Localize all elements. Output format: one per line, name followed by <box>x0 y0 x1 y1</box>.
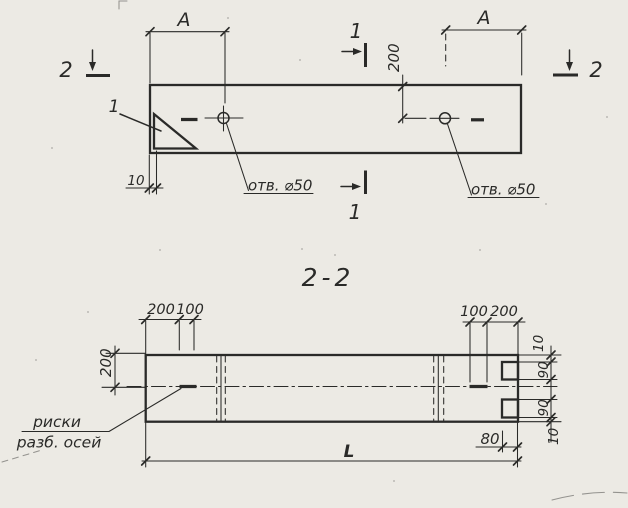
drawing-canvas: 1 A A <box>0 0 628 508</box>
scan-artifact <box>552 492 627 500</box>
dimension-left-200: 200 <box>97 346 145 395</box>
dim-200-label: 200 <box>147 302 175 318</box>
paper-speck <box>159 249 161 251</box>
section-mark-1-top: 1 <box>342 19 366 67</box>
hole-1-callout-label: отв. ⌀50 <box>248 177 312 195</box>
leader-line <box>227 124 249 191</box>
dim-l-label: L <box>344 442 355 462</box>
beam-outline-section <box>146 355 518 422</box>
dim-10-top-label: 10 <box>531 335 547 352</box>
dimension-right-chain: 10 90 90 10 <box>519 335 562 445</box>
paper-speck <box>334 254 336 256</box>
dim-200-label: 200 <box>490 304 518 320</box>
dim-200-plan-label: 200 <box>385 43 403 72</box>
dimension-top-left: 200 100 <box>139 302 204 354</box>
dim-a-right-label: A <box>476 7 491 29</box>
hole-1-callout: отв. ⌀50 <box>227 124 314 195</box>
dimension-top-right: 100 200 <box>460 304 525 382</box>
section-mark-2-left: 2 <box>59 50 110 82</box>
dim-90-bottom-label: 90 <box>536 399 552 416</box>
leader-line <box>448 124 472 195</box>
scan-artifact <box>119 1 127 9</box>
hole-2-callout-label: отв. ⌀50 <box>471 181 535 199</box>
section-mark-2-right: 2 <box>553 50 603 82</box>
hole-2-callout: отв. ⌀50 <box>448 124 540 199</box>
drawing-sheet: 1 A A <box>0 0 628 508</box>
section-2-right-label: 2 <box>589 58 602 82</box>
dimension-a-right: A <box>442 7 526 75</box>
end-notch-upper <box>502 362 518 380</box>
paper-speck <box>87 311 89 313</box>
section-arrow-head <box>352 183 361 190</box>
paper-speck <box>606 116 608 118</box>
section-title: 2-2 <box>302 263 355 292</box>
diaphragm-lines-left <box>217 356 226 421</box>
axis-note: риски разб. осей <box>16 389 181 452</box>
dimension-10-plan: 10 <box>126 151 163 194</box>
dim-100-label: 100 <box>176 302 204 318</box>
dimension-80: 80 <box>476 430 522 452</box>
dim-100-label: 100 <box>460 304 488 320</box>
section-arrow-head <box>353 48 362 55</box>
top-view: 1 A A <box>59 7 602 224</box>
paper-speck <box>227 17 229 19</box>
detail-mark-label: 1 <box>109 97 120 117</box>
axis-note-line2: разб. осей <box>16 434 102 452</box>
beam-outline-plan <box>150 85 521 153</box>
dimension-200-plan: 200 <box>385 43 407 123</box>
paper-speck <box>393 480 395 482</box>
axis-note-line1: риски <box>32 413 81 431</box>
section-1-bottom-label: 1 <box>349 200 362 224</box>
dim-a-left-label: A <box>176 9 191 31</box>
dim-10-plan-label: 10 <box>127 173 144 189</box>
paper-speck <box>51 147 53 149</box>
paper-speck <box>299 59 301 61</box>
diaphragm-lines-right <box>434 356 444 421</box>
section-arrow-head <box>566 62 573 71</box>
scan-artifact <box>2 450 42 462</box>
dimension-length-l: L <box>142 423 522 467</box>
dimension-a-left: A <box>146 9 229 103</box>
paper-speck <box>35 359 37 361</box>
section-arrow-head <box>89 62 96 71</box>
end-notch-lower <box>502 400 518 418</box>
dim-90-top-label: 90 <box>536 361 552 378</box>
dim-10-bottom-label: 10 <box>546 428 562 445</box>
paper-speck <box>479 249 481 251</box>
paper-speck <box>301 248 303 250</box>
section-mark-1-bottom: 1 <box>341 171 366 225</box>
dim-left-200-label: 200 <box>97 348 115 377</box>
section-view: 2-2 200 <box>16 263 562 467</box>
section-2-left-label: 2 <box>59 58 72 82</box>
paper-speck <box>545 203 547 205</box>
dim-80-label: 80 <box>480 430 499 448</box>
section-1-top-label: 1 <box>350 19 363 43</box>
